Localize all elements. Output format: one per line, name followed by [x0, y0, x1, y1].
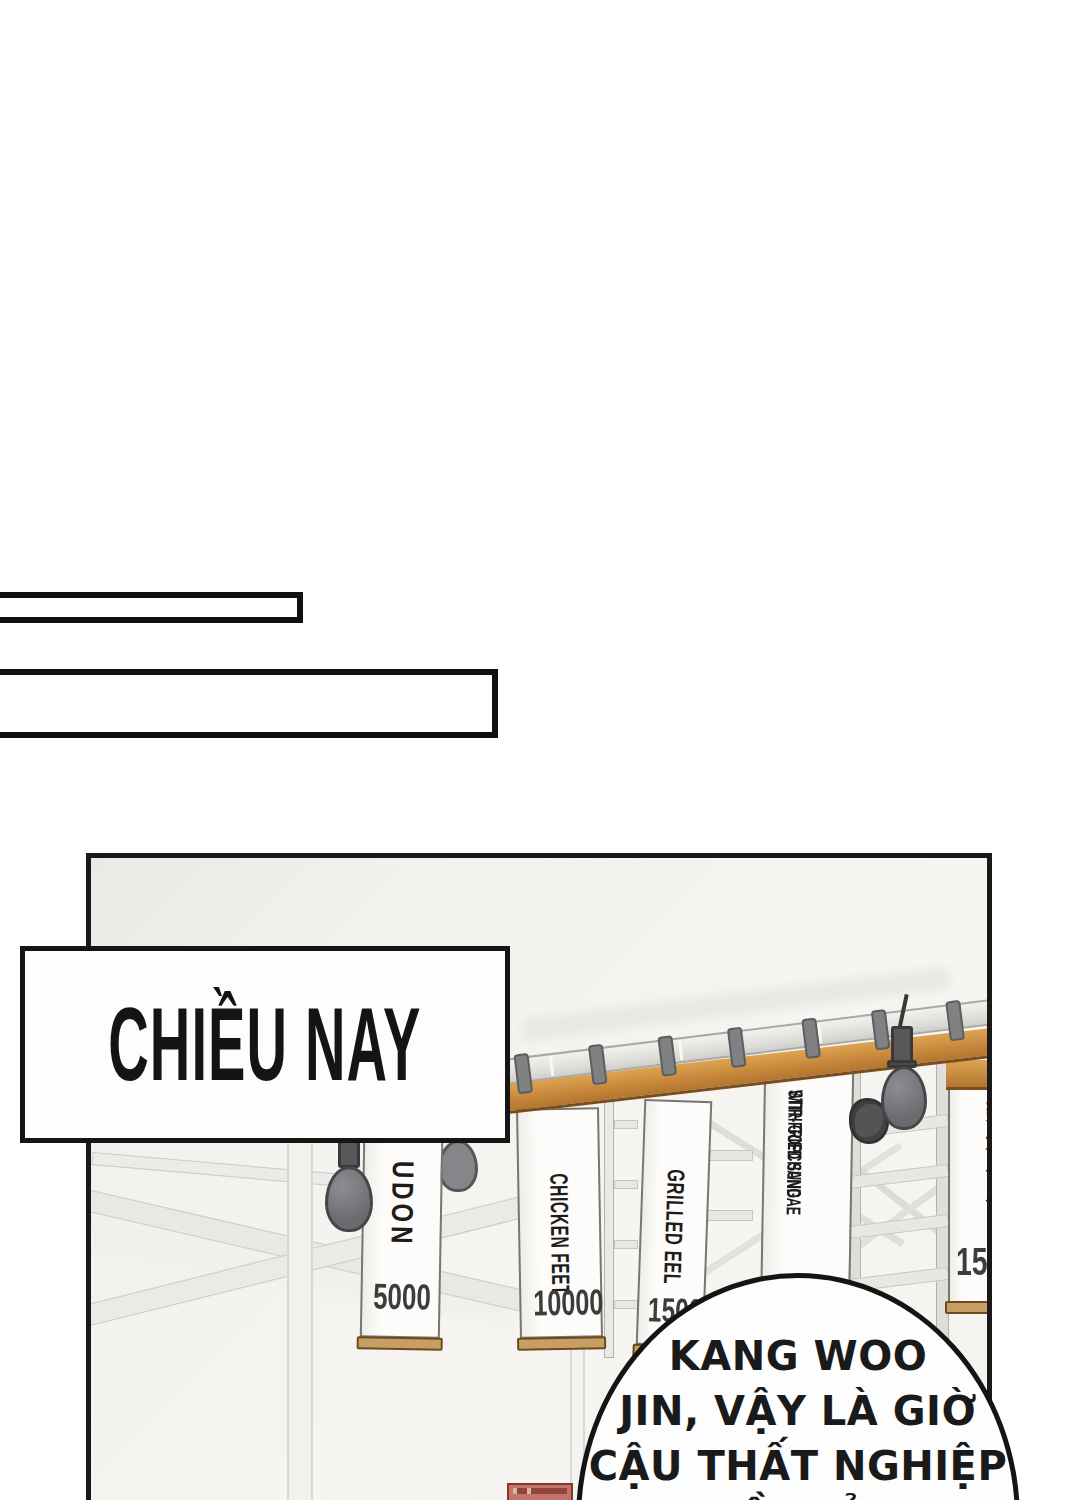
- speech-line-2: JIN, VẬY LÀ GIỜ: [581, 1384, 1015, 1439]
- red-sign: [507, 1483, 573, 1500]
- webtoon-page: UDON 5000 CHICKEN FEET 10000 GRILLED EEL…: [0, 0, 1080, 1500]
- banner-label: UDON: [384, 1161, 420, 1248]
- caption-box: CHIỀU NAY: [20, 946, 510, 1143]
- banner-rod: [357, 1336, 443, 1350]
- light-bulb-icon: [875, 994, 939, 1134]
- banner-price: 10000: [533, 1282, 589, 1325]
- ladder-rung: [614, 1120, 638, 1129]
- banner-label-line2: WITH GOPCHANG: [780, 1090, 809, 1199]
- ladder-rung: [614, 1300, 638, 1309]
- banner-chicken-feet: CHICKEN FEET 10000: [516, 1107, 603, 1338]
- light-bulb-icon: [321, 1134, 381, 1238]
- banner-label: GRILLED EEL: [658, 1169, 690, 1285]
- banner-hanja-menu: 辣炒小腸 15: [948, 1072, 992, 1312]
- ladder-rung: [614, 1240, 638, 1249]
- banner-rod: [945, 1301, 992, 1314]
- caption-text: CHIỀU NAY: [108, 985, 421, 1104]
- banner-label: CHICKEN FEET: [544, 1173, 575, 1295]
- speech-line-1: KANG WOO: [581, 1329, 1015, 1384]
- scaffold-post: [287, 1142, 313, 1500]
- banner-label-hanja: 辣炒小腸: [982, 1078, 992, 1190]
- banner-price: 5000: [373, 1276, 428, 1319]
- speech-line-3: CẬU THẤT NGHIỆP: [581, 1439, 1015, 1494]
- red-sign-text: [513, 1488, 567, 1494]
- empty-caption-box-2: [0, 669, 498, 738]
- banner-price: 15: [950, 1241, 991, 1284]
- empty-caption-box-1: [0, 592, 303, 623]
- speech-line-4: RỒI HẢ?: [581, 1494, 1015, 1500]
- ladder-rail: [604, 1093, 614, 1358]
- ladder-rung: [614, 1180, 638, 1189]
